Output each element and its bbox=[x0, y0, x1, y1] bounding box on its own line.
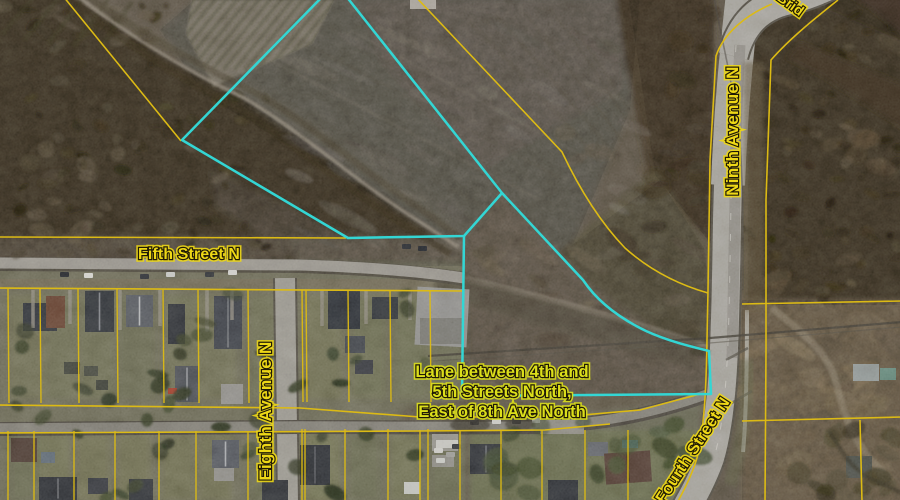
svg-text:East of 8th Ave North: East of 8th Ave North bbox=[418, 402, 586, 421]
svg-text:5th Streets North,: 5th Streets North, bbox=[432, 382, 571, 401]
svg-text:Fifth Street N: Fifth Street N bbox=[138, 246, 240, 263]
svg-text:Ninth Avenue N: Ninth Avenue N bbox=[723, 66, 742, 196]
svg-text:Lane between 4th and: Lane between 4th and bbox=[415, 362, 588, 381]
svg-text:Eighth Avenue N: Eighth Avenue N bbox=[256, 341, 275, 480]
